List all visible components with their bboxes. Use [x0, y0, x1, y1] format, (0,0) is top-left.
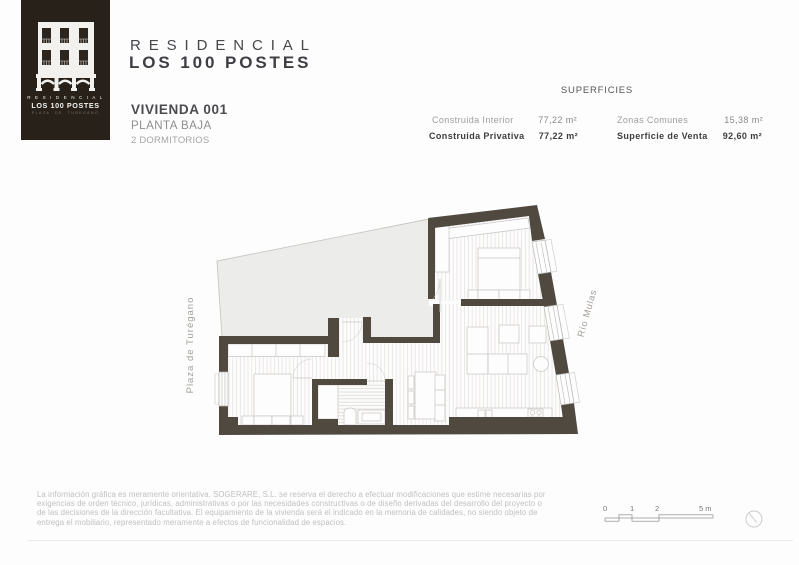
svg-text:1: 1 — [630, 504, 634, 513]
svg-text:5 m: 5 m — [699, 504, 712, 513]
svg-text:2: 2 — [655, 504, 659, 513]
svg-text:Plaza de Turégano: Plaza de Turégano — [185, 297, 196, 394]
svg-text:Río Mulas: Río Mulas — [576, 288, 599, 338]
svg-text:0: 0 — [603, 504, 607, 513]
